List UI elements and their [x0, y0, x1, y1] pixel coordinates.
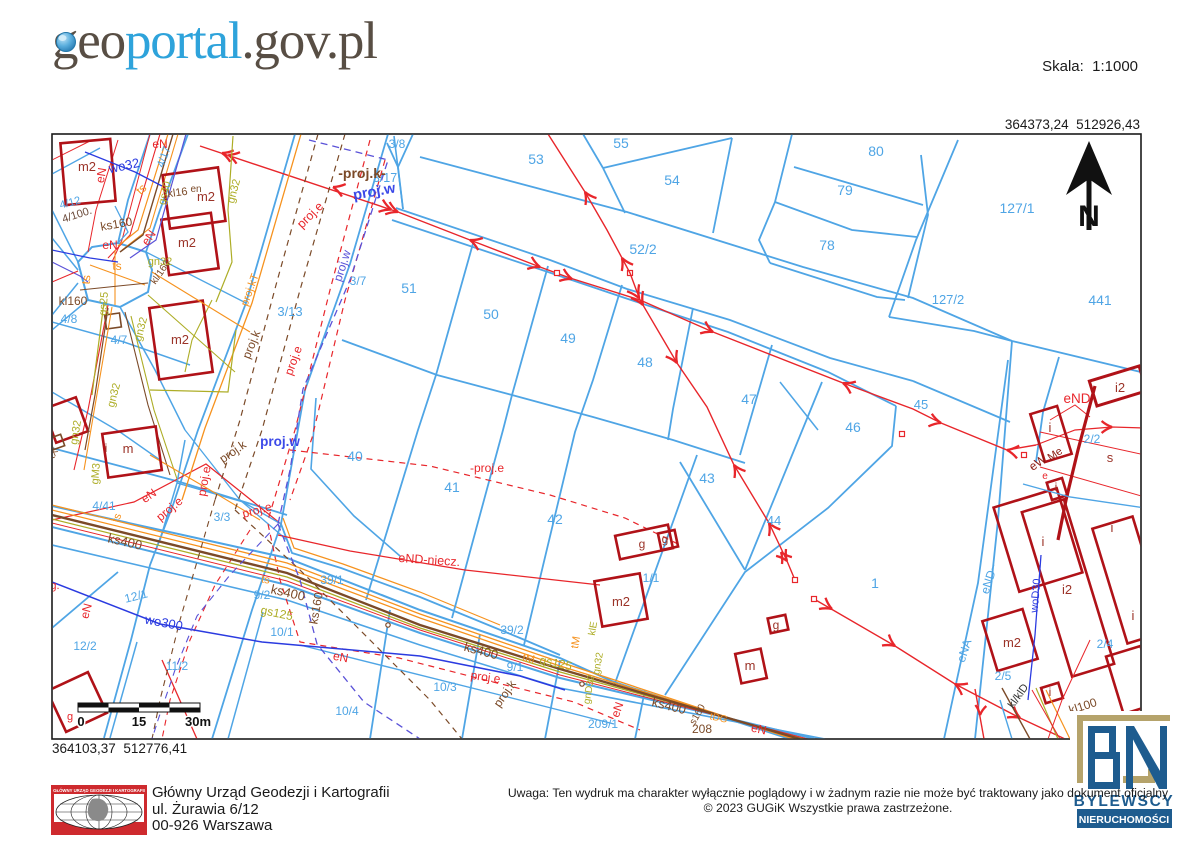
svg-text:42: 42 — [547, 511, 563, 527]
svg-text:i: i — [1049, 685, 1052, 699]
svg-text:m2: m2 — [612, 594, 630, 609]
svg-text:N: N — [1078, 200, 1100, 233]
svg-text:50: 50 — [483, 306, 499, 322]
svg-text:eND: eND — [1063, 391, 1090, 406]
svg-text:ts: ts — [79, 274, 94, 285]
svg-text:208: 208 — [692, 722, 712, 736]
svg-text:1: 1 — [871, 575, 879, 591]
svg-text:2/4: 2/4 — [1097, 637, 1114, 651]
svg-text:4/7: 4/7 — [111, 333, 128, 347]
svg-text:41: 41 — [444, 479, 460, 495]
svg-text:15: 15 — [132, 714, 146, 729]
svg-text:© 2023 GUGiK Wszystkie prawa z: © 2023 GUGiK Wszystkie prawa zastrzeżone… — [704, 801, 953, 815]
svg-text:i: i — [1049, 420, 1052, 435]
svg-text:m2: m2 — [78, 159, 96, 174]
svg-text:e: e — [1042, 471, 1048, 482]
svg-text:g: g — [67, 711, 73, 723]
svg-text:55: 55 — [613, 135, 629, 151]
svg-text:gs25: gs25 — [97, 291, 111, 316]
svg-text:ts: ts — [112, 259, 121, 273]
svg-text:47: 47 — [741, 391, 757, 407]
svg-text:4/41: 4/41 — [92, 499, 116, 513]
svg-text:m2: m2 — [1003, 635, 1021, 650]
svg-text:i: i — [1042, 534, 1045, 549]
svg-text:g: g — [639, 537, 646, 551]
svg-text:g: g — [662, 532, 669, 546]
svg-text:53: 53 — [528, 151, 544, 167]
svg-text:i2: i2 — [1115, 380, 1125, 395]
svg-text:441: 441 — [1088, 292, 1112, 308]
svg-text:79: 79 — [837, 182, 853, 198]
svg-text:49: 49 — [560, 330, 576, 346]
svg-text:43: 43 — [699, 470, 715, 486]
svg-text:m2: m2 — [171, 332, 189, 347]
svg-text:eN: eN — [332, 649, 350, 665]
svg-text:00-926 Warszawa: 00-926 Warszawa — [152, 817, 273, 834]
svg-text:Skala: 1:1000: Skala: 1:1000 — [1042, 58, 1138, 75]
svg-text:gn32: gn32 — [148, 256, 172, 268]
svg-text:2/2: 2/2 — [1084, 432, 1101, 446]
svg-text:3/7: 3/7 — [350, 274, 367, 288]
svg-text:proj.w: proj.w — [260, 434, 300, 449]
svg-text:44: 44 — [767, 513, 781, 528]
svg-text:NIERUCHOMOŚCI: NIERUCHOMOŚCI — [1079, 813, 1170, 826]
svg-text:tM: tM — [569, 635, 583, 649]
svg-text:i: i — [1132, 608, 1135, 623]
svg-text:39/1: 39/1 — [320, 573, 344, 587]
svg-text:en: en — [190, 184, 201, 195]
svg-text:45: 45 — [914, 397, 928, 412]
svg-text:80: 80 — [868, 143, 884, 159]
svg-text:3/3: 3/3 — [214, 510, 231, 524]
svg-text:3/8: 3/8 — [389, 137, 406, 151]
svg-text:eN: eN — [102, 238, 117, 252]
svg-text:m: m — [745, 658, 756, 673]
svg-text:0: 0 — [77, 714, 84, 729]
svg-text:46: 46 — [845, 419, 861, 435]
svg-text:209/1: 209/1 — [588, 717, 618, 731]
svg-text:51: 51 — [401, 280, 417, 296]
svg-text:4/8: 4/8 — [61, 312, 78, 326]
svg-text:364103,37 512776,41: 364103,37 512776,41 — [52, 741, 187, 756]
svg-text:s: s — [1107, 450, 1114, 465]
svg-text:i2: i2 — [1062, 582, 1072, 597]
svg-text:-proj.e: -proj.e — [470, 461, 504, 475]
svg-text:kl160: kl160 — [59, 294, 88, 308]
svg-text:m: m — [123, 441, 134, 456]
svg-text:3/13: 3/13 — [277, 304, 302, 319]
svg-text:12/2: 12/2 — [73, 639, 97, 653]
svg-text:gM3: gM3 — [89, 463, 103, 485]
svg-text:127/2: 127/2 — [932, 292, 965, 307]
svg-text:39/2: 39/2 — [500, 623, 524, 637]
svg-text:364373,24 512926,43: 364373,24 512926,43 — [1005, 117, 1140, 132]
svg-text:10/3: 10/3 — [433, 680, 457, 694]
svg-text:geoportal.gov.pl: geoportal.gov.pl — [52, 12, 377, 70]
svg-text:-proj.k-: -proj.k- — [338, 165, 386, 181]
svg-text:i: i — [1111, 520, 1114, 535]
svg-text:Uwaga: Ten wydruk ma charakter: Uwaga: Ten wydruk ma charakter wyłącznie… — [508, 786, 1169, 800]
svg-text:m2: m2 — [178, 235, 196, 250]
svg-text:9/2: 9/2 — [254, 588, 271, 602]
svg-text:10/1: 10/1 — [270, 625, 294, 639]
svg-text:i: i — [1055, 480, 1058, 494]
svg-text:30m: 30m — [185, 714, 211, 729]
svg-text:GŁÓWNY URZĄD GEODEZJI I KARTOG: GŁÓWNY URZĄD GEODEZJI I KARTOGRAFII — [53, 788, 145, 793]
svg-text:eN: eN — [93, 167, 109, 185]
svg-text:52/2: 52/2 — [629, 241, 656, 257]
svg-text:11/2: 11/2 — [166, 659, 189, 673]
svg-text:1/1: 1/1 — [643, 571, 660, 585]
svg-text:2/5: 2/5 — [995, 669, 1012, 683]
svg-text:40: 40 — [347, 448, 363, 464]
svg-text:48: 48 — [637, 354, 653, 370]
svg-text:10/4: 10/4 — [335, 704, 359, 718]
svg-text:i: i — [105, 441, 108, 455]
svg-text:54: 54 — [664, 172, 680, 188]
svg-text:78: 78 — [819, 237, 835, 253]
svg-text:Główny Urząd Geodezji i Kartog: Główny Urząd Geodezji i Kartografii — [152, 784, 390, 801]
svg-text:ul. Żurawia 6/12: ul. Żurawia 6/12 — [152, 800, 259, 818]
svg-text:eN: eN — [152, 137, 167, 151]
svg-text:127/1: 127/1 — [999, 200, 1034, 216]
svg-text:g: g — [773, 618, 780, 632]
svg-text:tM: tM — [521, 652, 535, 666]
